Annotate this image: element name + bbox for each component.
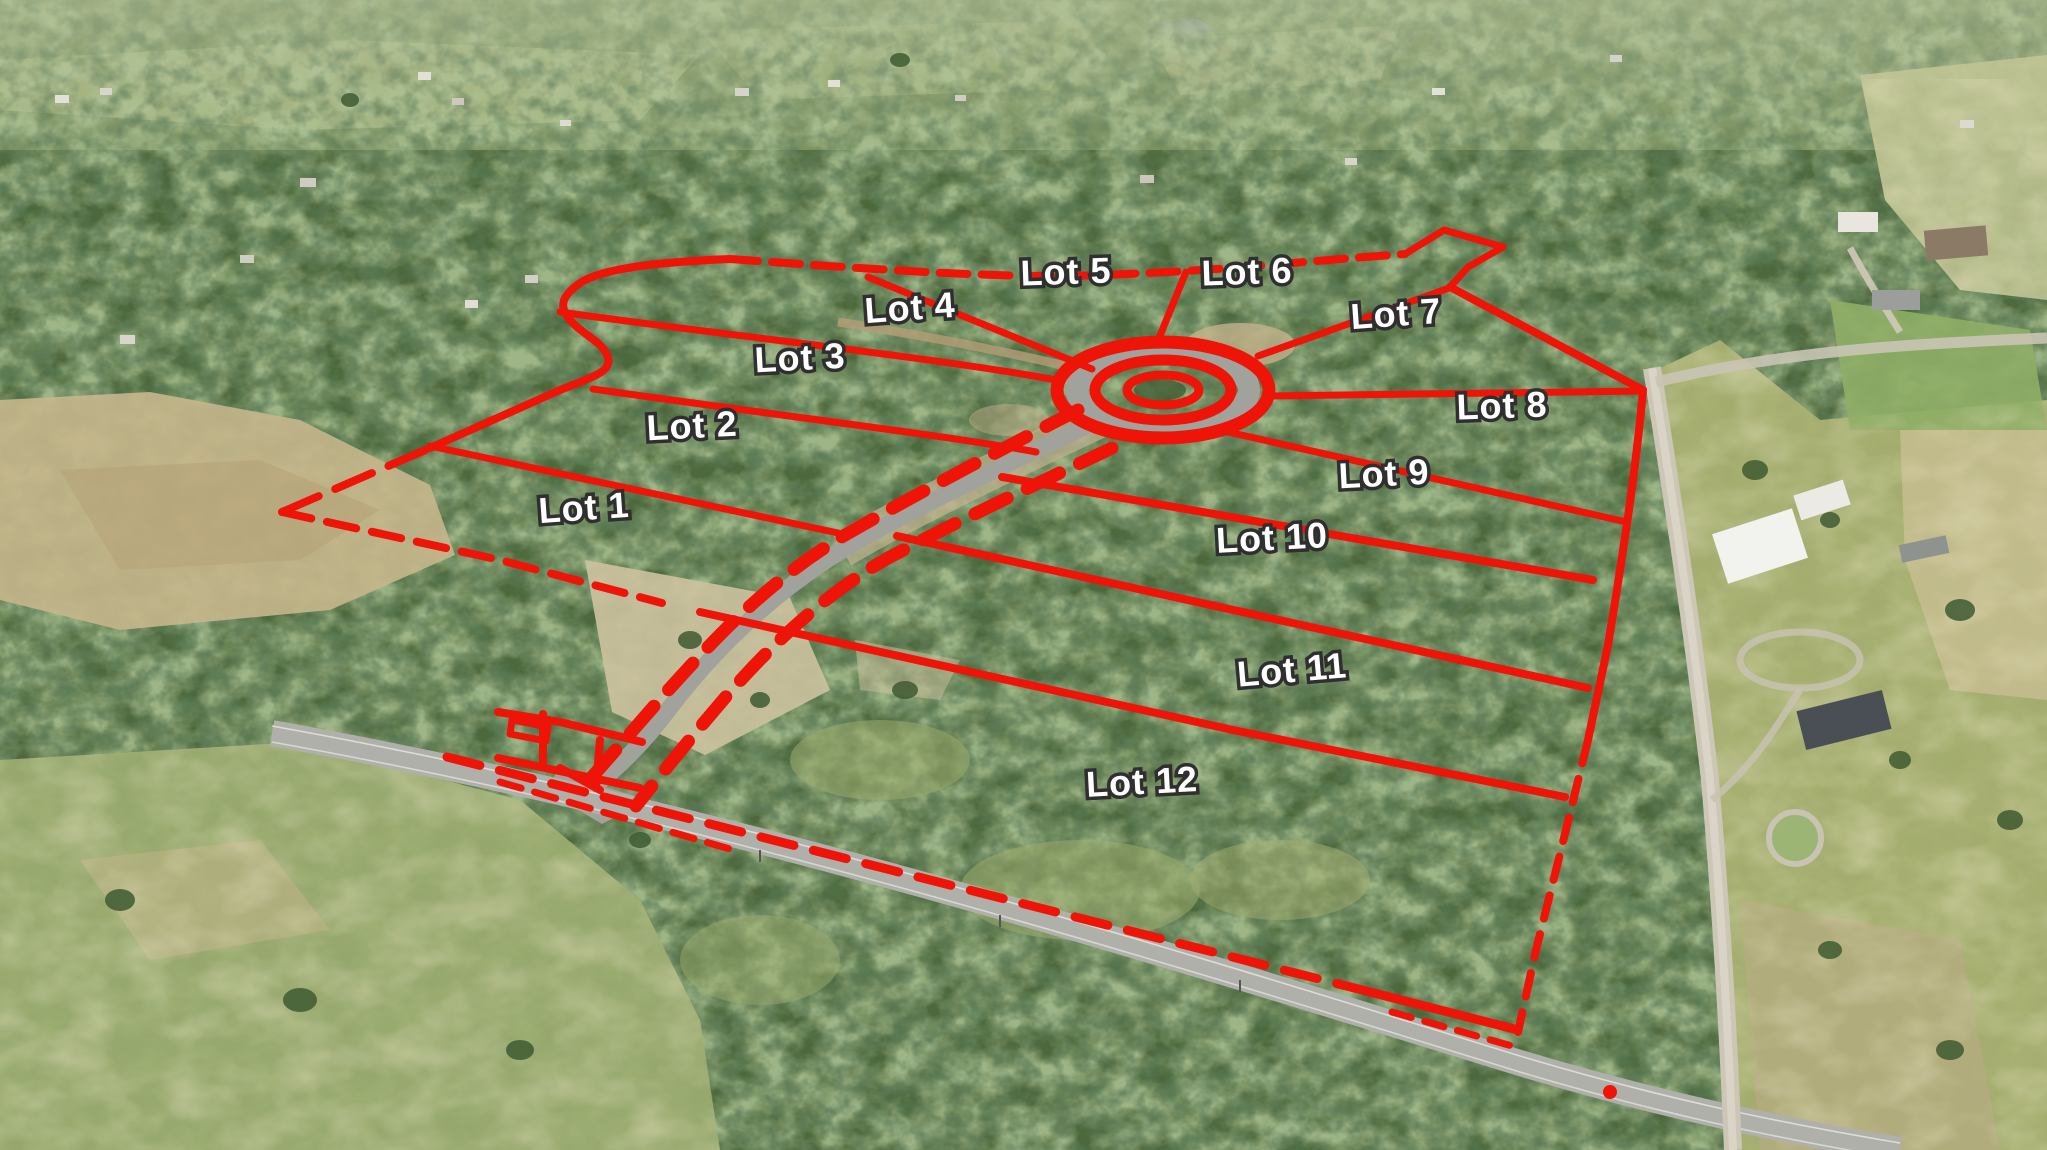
white-roof-house [1838,212,1878,232]
entrance-line-cross-2 [596,740,600,788]
lot-label-9: Lot 9 [1337,451,1430,497]
lot-label-12: Lot 12 [1085,758,1199,805]
aerial-photo-canvas: Lot 1 Lot 2 Lot 3 Lot 4 Lot 5 Lot 6 Lot … [0,0,2047,1150]
lot-label-3: Lot 3 [753,335,846,381]
grass-opening [680,915,840,1005]
grass-opening [790,720,970,800]
survey-dot [1603,1085,1617,1099]
lot-label-1: Lot 1 [537,484,631,531]
lot-label-5: Lot 5 [1020,249,1112,293]
grass-opening [1190,840,1370,920]
lot-label-8: Lot 8 [1456,383,1548,427]
atmospheric-haze [0,0,2047,170]
lot-label-2: Lot 2 [645,403,738,449]
lot-label-6: Lot 6 [1201,249,1293,293]
lot-label-10: Lot 10 [1215,514,1329,561]
aerial-subdivision-photo: Lot 1 Lot 2 Lot 3 Lot 4 Lot 5 Lot 6 Lot … [0,0,2047,1150]
brown-roof-house [1924,225,1988,260]
garden-circle [1769,812,1821,864]
gray-roof-house [1872,290,1920,310]
lot-label-4: Lot 4 [863,284,957,331]
lot-label-7: Lot 7 [1349,290,1443,337]
